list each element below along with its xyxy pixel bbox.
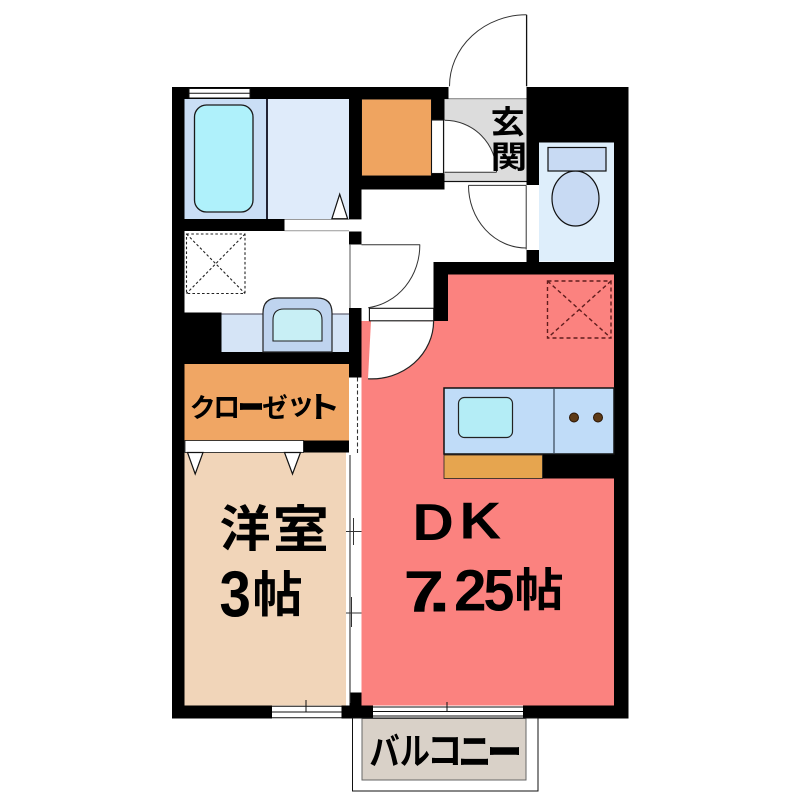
svg-text:K: K	[460, 492, 502, 549]
svg-text:3: 3	[220, 558, 251, 630]
svg-text:5: 5	[484, 558, 515, 624]
svg-text:D: D	[413, 494, 454, 552]
svg-text:2: 2	[454, 559, 487, 624]
svg-text:.: .	[428, 560, 451, 625]
